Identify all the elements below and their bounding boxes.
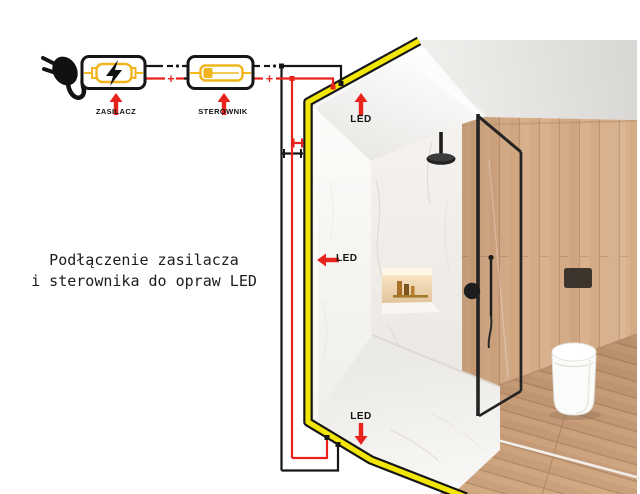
shower-valve-icon	[464, 283, 480, 299]
plus-marker: +	[167, 72, 174, 86]
niche-shelf	[393, 295, 428, 298]
plus-marker: +	[266, 72, 273, 86]
led-label-wall: LED	[336, 253, 358, 264]
led-label-floor: LED	[331, 411, 391, 422]
led-label-ceiling: LED	[331, 114, 391, 125]
caption: Podłączenie zasilacza i sterownika do op…	[24, 250, 264, 292]
power-supply-box	[82, 57, 145, 89]
caption-line-2: i sterownika do opraw LED	[24, 271, 264, 292]
plug-icon	[43, 52, 84, 98]
power-supply-label: ZASILACZ	[71, 107, 161, 116]
niche-ledge	[382, 302, 440, 314]
bottle	[411, 286, 415, 296]
shower-niche	[382, 268, 440, 314]
bottle	[397, 281, 402, 296]
bottle	[404, 284, 409, 296]
caption-line-1: Podłączenie zasilacza	[24, 250, 264, 271]
bathroom-photo	[308, 40, 640, 494]
scene: + +	[0, 0, 640, 494]
infographic-canvas: + +	[0, 0, 640, 494]
controller-box	[184, 57, 253, 89]
flush-plate	[564, 268, 592, 288]
controller-label: STEROWNIK	[178, 107, 268, 116]
